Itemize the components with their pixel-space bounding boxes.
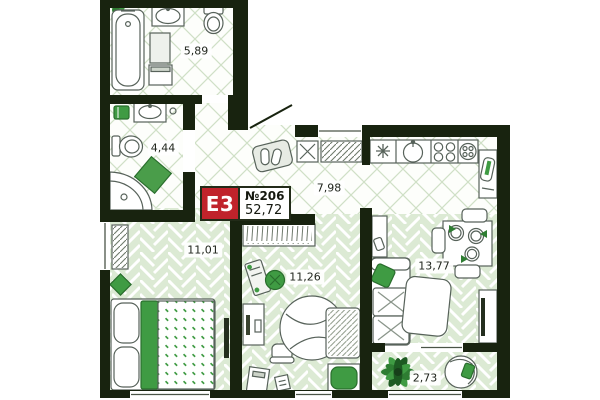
double-bed xyxy=(111,299,215,390)
stool-green xyxy=(266,271,285,290)
unit-type-label: E3 xyxy=(202,188,238,219)
side-cabinet xyxy=(372,216,387,257)
floor-plan-drawing xyxy=(0,0,600,400)
cabinet xyxy=(150,33,170,63)
desk xyxy=(243,304,264,345)
chaise-lounge xyxy=(401,276,452,337)
unit-badge: E3 №206 52,72 xyxy=(200,186,291,221)
area-label-room: 11,26 xyxy=(286,270,324,285)
armchair xyxy=(445,356,477,388)
fridge xyxy=(479,150,497,198)
area-label-balcony: 2,73 xyxy=(410,371,441,386)
vent-box-icon xyxy=(297,141,318,162)
kitchen-radiator xyxy=(321,141,362,162)
toilet xyxy=(204,6,223,34)
toilet xyxy=(112,136,143,157)
paper-item xyxy=(275,375,291,391)
area-label-living-room: 13,77 xyxy=(415,259,453,274)
area-label-kitchen: 7,98 xyxy=(314,181,345,196)
towel-green xyxy=(114,106,129,119)
area-label-bathroom-small: 4,44 xyxy=(148,141,179,156)
bedroom-radiator xyxy=(112,225,128,269)
bathtub xyxy=(112,10,144,90)
wardrobe-rail xyxy=(243,224,315,246)
tv-stand xyxy=(479,290,497,343)
unit-info: №206 52,72 xyxy=(238,188,289,219)
cooktop-asterisk-icon xyxy=(376,144,390,158)
ottoman-green xyxy=(328,364,360,392)
entry-door-swing xyxy=(250,105,292,128)
single-bed xyxy=(326,308,360,358)
floor-plan-canvas: 5,89 4,44 7,98 11,01 11,26 13,77 2,73 E3… xyxy=(0,0,600,400)
sink xyxy=(134,103,166,122)
area-label-bedroom: 11,01 xyxy=(184,243,222,258)
area-label-bathroom-large: 5,89 xyxy=(181,44,212,59)
pc-tower xyxy=(246,367,269,394)
washing-cabinet xyxy=(149,65,172,85)
unit-number-label: №206 xyxy=(245,190,285,203)
tv xyxy=(224,318,229,358)
sink xyxy=(152,6,184,26)
unit-total-area-label: 52,72 xyxy=(245,203,285,218)
